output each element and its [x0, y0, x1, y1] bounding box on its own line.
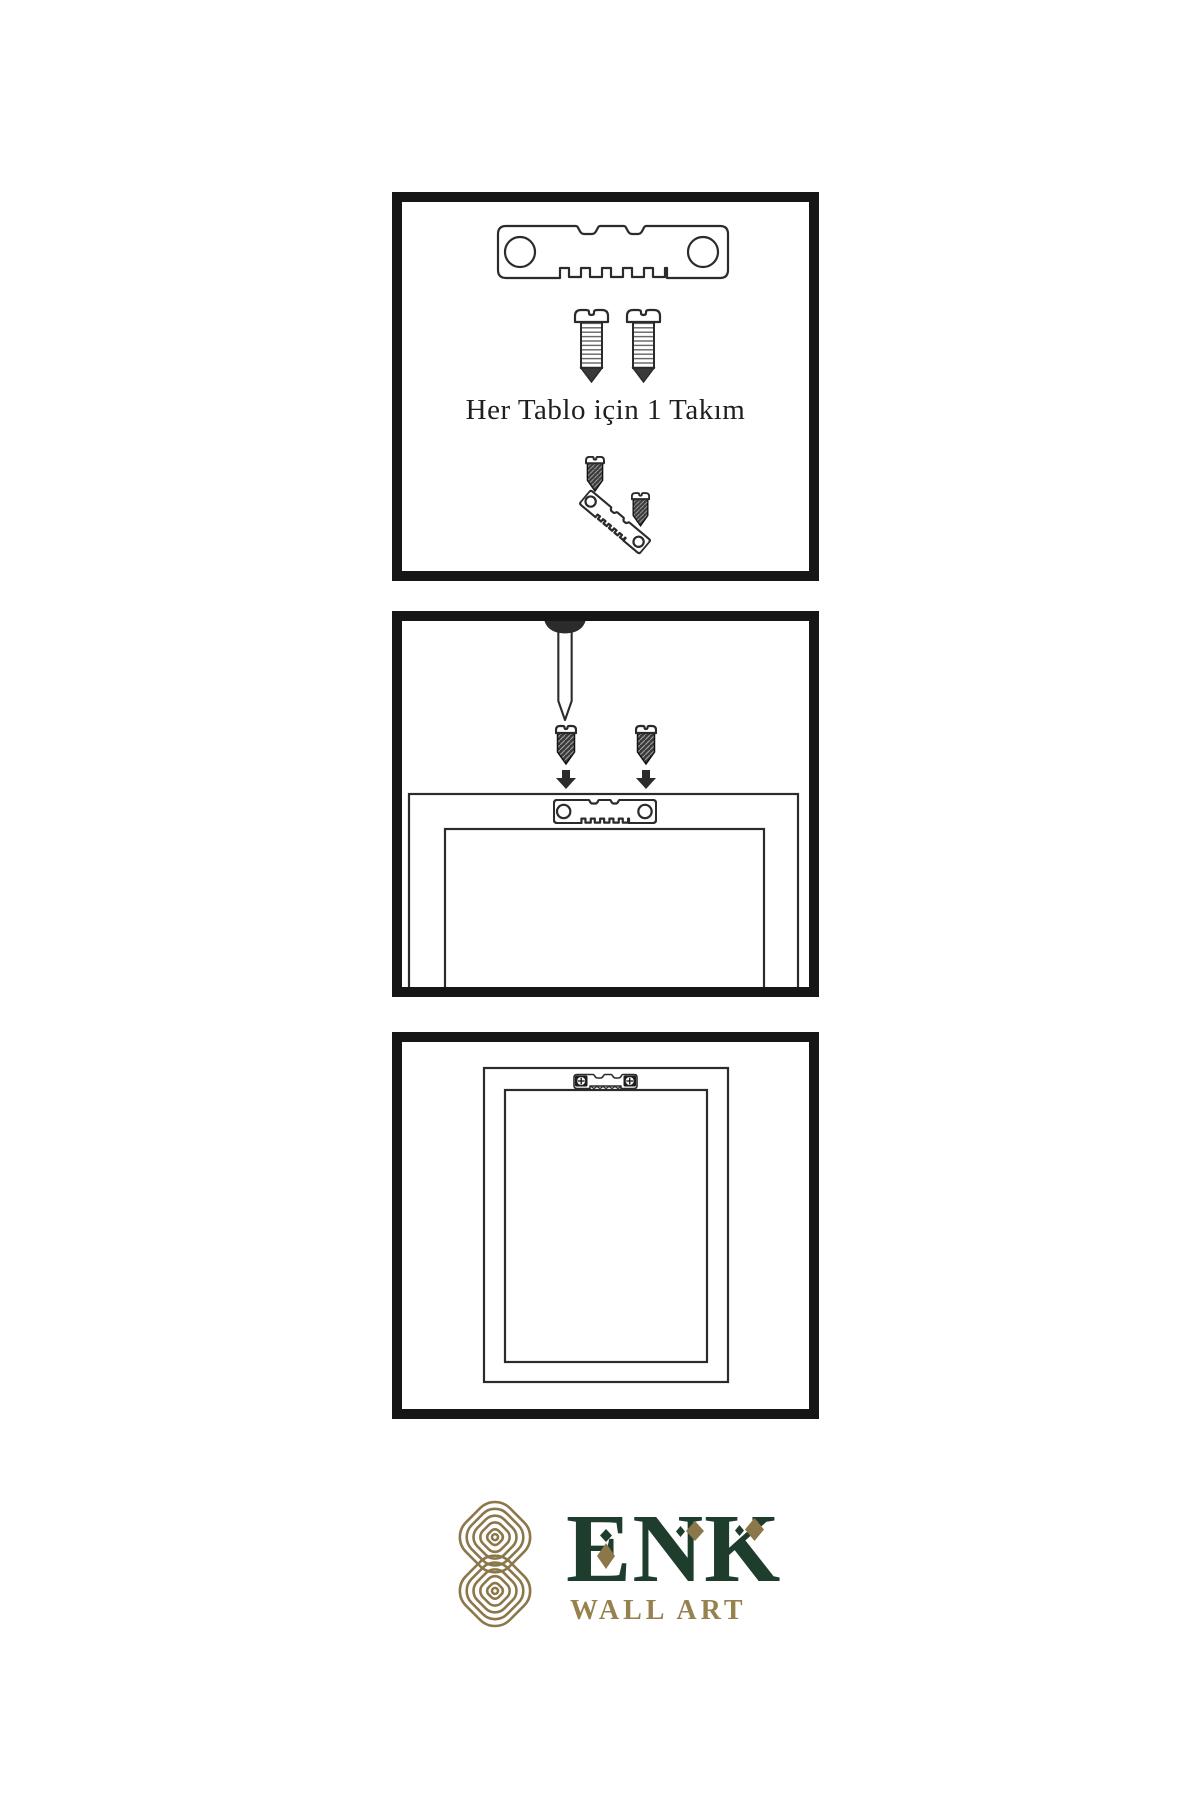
step-2-panel: [392, 611, 819, 997]
step-1-panel: Her Tablo için 1 Takım: [392, 192, 819, 581]
screw-icon: [627, 310, 660, 382]
diamond-accent: [600, 1529, 612, 1542]
diamond-accent: [745, 1518, 764, 1541]
brand-name: ENK: [566, 1500, 781, 1598]
screw-into-hanger-demo-icon: [579, 457, 651, 554]
sawtooth-hanger-icon: [498, 226, 728, 278]
down-arrow-icon: [636, 770, 656, 789]
instruction-sheet: Her Tablo için 1 Takım: [0, 0, 1200, 1800]
brand-tagline: WALL ART: [570, 1595, 747, 1627]
step-3-panel: [392, 1032, 819, 1419]
screw-icon: [575, 310, 608, 382]
step-1-caption: Her Tablo için 1 Takım: [402, 394, 809, 427]
screw-icon: [636, 726, 656, 764]
step-2-figure: [402, 621, 809, 987]
sawtooth-hanger-on-frame-icon: [554, 800, 656, 823]
diamond-accent: [597, 1543, 615, 1569]
knot-emblem-icon: [432, 1498, 558, 1630]
wall-nail-icon: [545, 621, 586, 720]
step-3-figure: [402, 1042, 809, 1409]
down-arrow-icon: [556, 770, 576, 789]
frame-back-inner-outline: [445, 829, 764, 987]
step-1-figure: [402, 202, 809, 571]
diamond-accent: [686, 1521, 704, 1541]
mounted-hanger-icon: [574, 1075, 637, 1089]
diamond-accent: [735, 1525, 744, 1536]
hung-frame-inner-outline: [505, 1090, 707, 1362]
screw-icon: [556, 726, 576, 764]
diamond-accent: [676, 1526, 685, 1537]
